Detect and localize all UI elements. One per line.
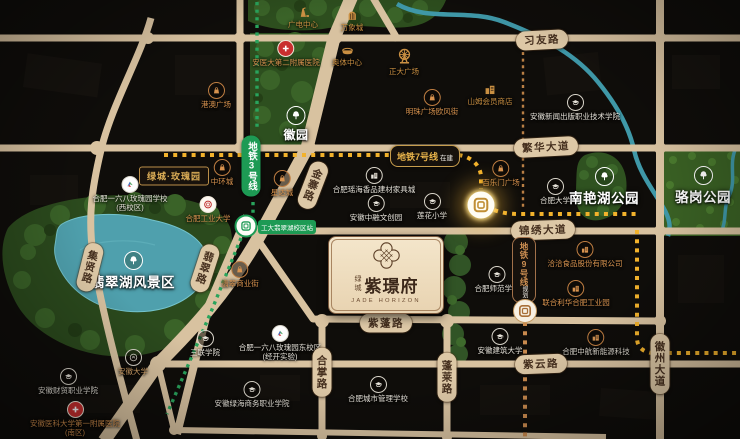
tree-icon	[124, 251, 143, 270]
crane-logo-icon	[272, 325, 289, 342]
poi-hfut: 合肥工业大学	[186, 196, 231, 223]
poi-zhonghang-tech: 合肥中航新能源科技	[562, 329, 630, 356]
park-name: 徽园	[283, 126, 308, 143]
poi-gangao-plaza: 港澳广场	[201, 82, 231, 109]
university-seal-icon	[125, 349, 142, 366]
poi-168-school-east: 合肥一六八玫瑰园东校区 (经开实验)	[239, 325, 322, 362]
school-icon	[60, 368, 77, 385]
poi-sams-club: 山姆会员商店	[468, 83, 513, 106]
school-icon	[370, 376, 387, 393]
poi-sanlian-college: 三联学院	[190, 330, 220, 357]
company-icon	[577, 241, 594, 258]
company-icon	[588, 329, 605, 346]
park-name: 南艳湖公园	[569, 187, 639, 207]
poi-mingzhu-plaza: 明珠广场欧风街	[406, 89, 459, 116]
road-label-xiyou: 习友路	[516, 29, 569, 51]
poi-anhui-university: 安徽大学	[118, 349, 148, 376]
road-label-fanhua: 繁华大道	[514, 136, 579, 158]
road-label-hezhang: 合掌路	[313, 348, 332, 397]
metro-line7-label: 地铁7号线在建	[390, 145, 460, 167]
landmark-rose-garden: 绿城·玫瑰园	[139, 167, 209, 186]
school-icon	[492, 328, 509, 345]
metro-station-label: 工大翡翠湖校区站	[258, 220, 316, 234]
shopping-bag-icon	[424, 89, 441, 106]
poi-jianzhu-university: 安徽建筑大学	[478, 328, 523, 355]
location-map: 徽园 翡翠湖风景区 南艳湖公园 骆岗公园 港澳广场 中环城 星达城 翡翠商业街 …	[0, 0, 740, 439]
card-inner-border	[331, 239, 441, 311]
school-icon	[424, 193, 441, 210]
poi-zhengda-plaza: 正大广场	[389, 47, 419, 76]
metro-glyph	[518, 304, 532, 318]
shopping-bag-icon	[274, 170, 291, 187]
poi-zhongrong-park: 安徽中融文创园	[350, 195, 403, 222]
school-icon	[244, 381, 261, 398]
metro-line9-label: 地铁9号线规划	[512, 237, 536, 303]
company-icon	[568, 280, 585, 297]
park-label-feicui-lake: 翡翠湖风景区	[91, 251, 175, 291]
hospital-cross-icon	[67, 401, 84, 418]
poi-xingda-city: 星达城	[271, 170, 294, 197]
school-icon	[567, 94, 584, 111]
metro-station-icon-line3	[235, 215, 258, 238]
tree-icon	[286, 106, 305, 125]
shopping-bag-icon	[208, 82, 225, 99]
metro-line7-status: 在建	[440, 155, 453, 162]
poi-chengguan-school: 合肥城市管理学校	[348, 376, 408, 403]
tree-icon	[694, 166, 713, 185]
poi-feicui-street: 翡翠商业街	[221, 261, 259, 288]
park-label-huiyuan: 徽园	[283, 106, 308, 143]
poi-unilever-park: 联合利华合肥工业园	[542, 280, 610, 307]
road-label-ziyun: 紫云路	[515, 354, 568, 375]
road-label-zipeng: 紫蓬路	[360, 314, 412, 333]
park-label-luogang: 骆岗公园	[675, 166, 731, 206]
crane-logo-icon	[122, 176, 139, 193]
poi-wanxiang-city: 万象城	[341, 9, 364, 32]
poi-aoti-center: 奥体中心	[332, 44, 362, 67]
metro-line7-name: 地铁7号线	[397, 152, 438, 162]
ferris-wheel-icon	[394, 47, 415, 66]
poi-zhonghuan-city: 中环城	[211, 159, 234, 186]
poi-lianhua-school: 莲花小学	[417, 193, 447, 220]
building-icon	[482, 83, 499, 96]
metro-line3-label: 地铁3号线	[242, 136, 261, 197]
road-label-penglai: 蓬莱路	[438, 353, 457, 402]
poi-lvhai-college: 安徽绿海商务职业学院	[215, 381, 290, 408]
poi-hefei-university: 合肥大学	[540, 178, 570, 205]
park-name: 骆岗公园	[675, 186, 731, 206]
metro-line9-status: 规划	[521, 286, 527, 298]
poi-caimao-college: 安徽财贸职业学院	[38, 368, 98, 395]
shopping-bag-icon	[232, 261, 249, 278]
poi-qiaqia-food: 洽洽食品股份有限公司	[548, 241, 623, 268]
poi-bailemen-plaza: 百乐门广场	[482, 160, 520, 187]
metro-line9-name: 地铁9号线	[519, 242, 529, 286]
poi-yaohai-market: 合肥瑶海香品建材家具城	[333, 167, 416, 194]
university-seal-icon	[200, 196, 217, 213]
hospital-cross-icon	[278, 40, 295, 57]
school-icon	[197, 330, 214, 347]
school-icon	[366, 167, 383, 184]
metro-station-icon-line9	[513, 299, 537, 323]
stadium-icon	[339, 44, 356, 57]
shopping-bag-icon	[214, 159, 231, 176]
poi-hospital-south: 安徽医科大学第一附属医院 (南区)	[30, 401, 120, 438]
school-icon	[489, 266, 506, 283]
road-label-huizhou: 徽州大道	[651, 334, 670, 394]
shopping-bag-icon	[493, 160, 510, 177]
project-card: 绿城 紫璟府 JADE HORIZON	[328, 236, 444, 314]
metro-glyph	[241, 221, 252, 232]
poi-xinwen-college: 安徽新闻出版职业技术学院	[530, 94, 620, 121]
project-glyph	[473, 197, 490, 214]
park-name: 翡翠湖风景区	[91, 271, 175, 291]
poi-guangdian-center: 广电中心	[288, 6, 318, 29]
poi-hospital-eryuan: 安医大第二附属医院	[252, 40, 320, 67]
tv-tower-icon	[295, 6, 312, 19]
park-label-nanyan: 南艳湖公园	[569, 167, 639, 207]
school-icon	[368, 195, 385, 212]
tree-icon	[595, 167, 614, 186]
school-icon	[547, 178, 564, 195]
project-location-marker	[468, 192, 495, 219]
mall-icon	[344, 9, 361, 22]
